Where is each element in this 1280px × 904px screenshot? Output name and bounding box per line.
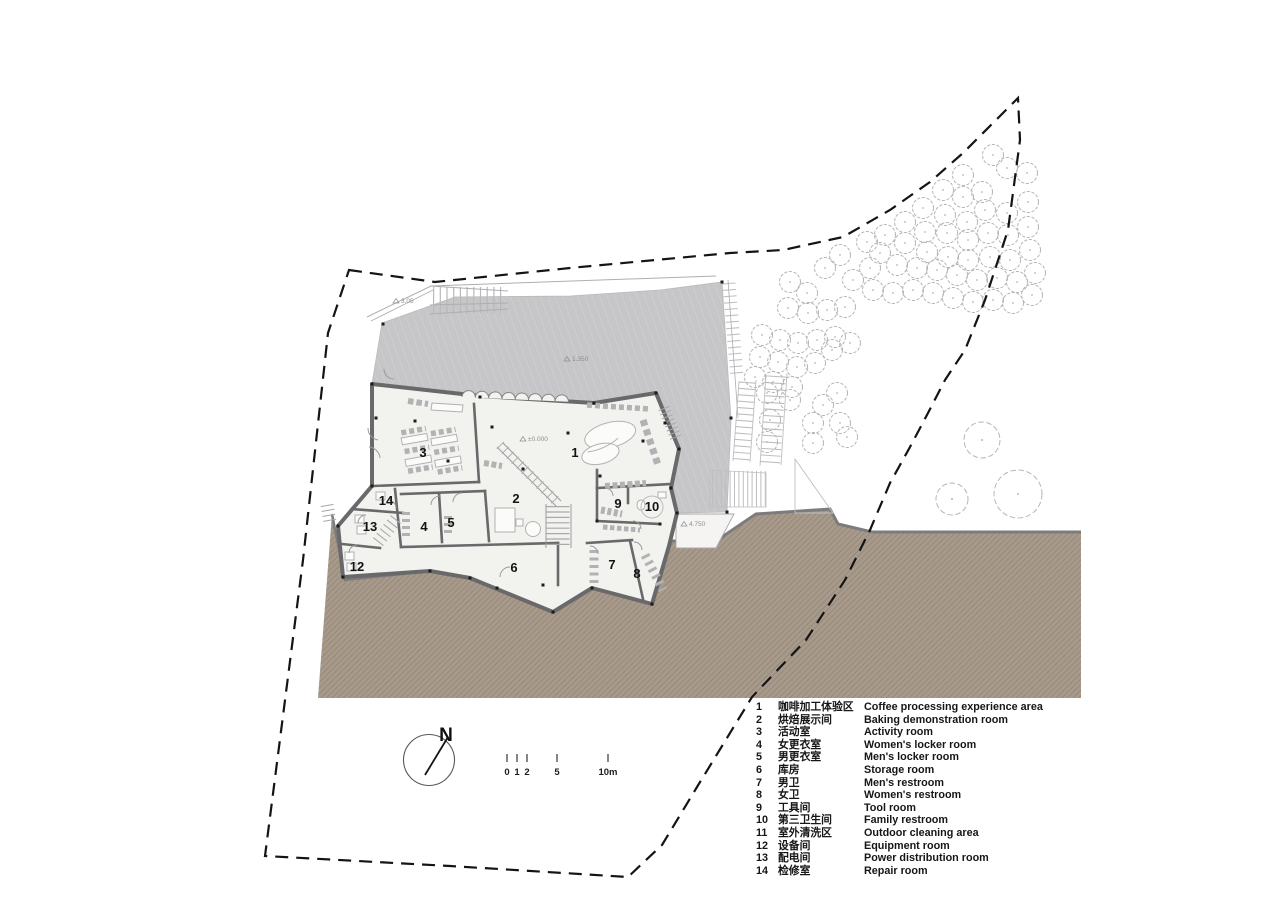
column-dot: [591, 587, 594, 590]
legend-num: 9: [756, 802, 778, 815]
tree-icon: [787, 357, 808, 378]
column-dot: [342, 576, 345, 579]
legend-zh: 男卫: [778, 777, 864, 790]
tree-icon: [843, 270, 864, 291]
tree-icon: [815, 258, 836, 279]
tree-icon: [1018, 192, 1039, 213]
tree-icon: [983, 145, 1004, 166]
tree-icon: [1022, 285, 1043, 306]
tree-icon: [825, 327, 846, 348]
legend-zh: 女更衣室: [778, 739, 864, 752]
room-number-label: 2: [512, 491, 519, 506]
column-dot: [567, 432, 570, 435]
ramp-triangle: [795, 459, 833, 513]
room-number-label: 4: [420, 519, 428, 534]
floor-plan-drawing: 12345678910121314 ±0.0004.7503.051.350 N…: [0, 0, 1280, 904]
legend-num: 10: [756, 814, 778, 827]
legend-num: 8: [756, 789, 778, 802]
tree-icon: [953, 165, 974, 186]
column-dot: [721, 281, 724, 284]
legend-row: 4女更衣室Women's locker room: [756, 739, 1076, 752]
legend-zh: 检修室: [778, 865, 864, 878]
tree-icon: [780, 390, 801, 411]
column-dot: [337, 525, 340, 528]
scale-bar: 012510m: [504, 754, 617, 778]
legend-row: 3活动室Activity room: [756, 726, 1076, 739]
column-dot: [414, 420, 417, 423]
column-dot: [371, 485, 374, 488]
tree-icon: [967, 270, 988, 291]
legend-zh: 咖啡加工体验区: [778, 701, 864, 714]
room-number-label: 8: [633, 566, 640, 581]
tree-icon: [923, 283, 944, 304]
tree-icon: [797, 283, 818, 304]
legend-row: 7男卫Men's restroom: [756, 777, 1076, 790]
tree-icon: [803, 433, 824, 454]
column-dot: [664, 422, 667, 425]
large-tree-icon: [936, 483, 968, 515]
level-annotation: 3.05: [393, 298, 414, 305]
legend-en: Men's restroom: [864, 777, 1076, 790]
room-number-label: 14: [379, 493, 394, 508]
north-compass: N: [404, 725, 455, 786]
tree-icon: [978, 223, 999, 244]
tree-icon: [822, 340, 843, 361]
legend-en: Family restroom: [864, 814, 1076, 827]
room-number-label: 1: [571, 445, 578, 460]
legend-zh: 设备间: [778, 840, 864, 853]
tree-icon: [1017, 163, 1038, 184]
column-dot: [542, 584, 545, 587]
tree-icon: [860, 258, 881, 279]
column-dot: [522, 468, 525, 471]
tree-icon: [997, 203, 1018, 224]
legend-zh: 库房: [778, 764, 864, 777]
tree-icon: [938, 247, 959, 268]
level-annotation-text: ±0.000: [528, 436, 548, 443]
tree-icon: [778, 298, 799, 319]
scale-tick-label: 10m: [598, 767, 617, 778]
room-number-label: 3: [419, 445, 426, 460]
legend-row: 10第三卫生间Family restroom: [756, 814, 1076, 827]
legend-en: Power distribution room: [864, 852, 1076, 865]
tree-icon: [937, 223, 958, 244]
legend-num: 14: [756, 865, 778, 878]
scale-tick-label: 2: [524, 767, 529, 778]
tree-icon: [963, 292, 984, 313]
column-dot: [382, 323, 385, 326]
tree-icon: [917, 242, 938, 263]
legend-zh: 室外清洗区: [778, 827, 864, 840]
room-number-label: 7: [608, 557, 615, 572]
legend-num: 1: [756, 701, 778, 714]
column-dot: [651, 603, 654, 606]
scale-tick-label: 1: [514, 767, 520, 778]
tree-icon: [835, 297, 856, 318]
tree-icon: [768, 352, 789, 373]
legend-en: Storage room: [864, 764, 1076, 777]
legend-en: Activity room: [864, 726, 1076, 739]
tree-icon: [813, 395, 834, 416]
legend: 1咖啡加工体验区Coffee processing experience are…: [756, 701, 1076, 877]
legend-zh: 工具间: [778, 802, 864, 815]
column-dot: [659, 523, 662, 526]
scale-tick-label: 0: [504, 767, 509, 778]
tree-icon: [903, 280, 924, 301]
column-dot: [593, 402, 596, 405]
column-dot: [429, 570, 432, 573]
column-dot: [491, 426, 494, 429]
legend-zh: 女卫: [778, 789, 864, 802]
legend-en: Repair room: [864, 865, 1076, 878]
legend-num: 5: [756, 751, 778, 764]
compass-north-label: N: [439, 725, 453, 746]
legend-num: 3: [756, 726, 778, 739]
legend-zh: 活动室: [778, 726, 864, 739]
legend-row: 1咖啡加工体验区Coffee processing experience are…: [756, 701, 1076, 714]
tree-icon: [907, 258, 928, 279]
legend-num: 12: [756, 840, 778, 853]
tree-icon: [1025, 263, 1046, 284]
tree-icon: [757, 383, 778, 404]
tree-icon: [857, 232, 878, 253]
tree-icon: [807, 330, 828, 351]
tree-icon: [958, 250, 979, 271]
legend-row: 13配电间Power distribution room: [756, 852, 1076, 865]
tree-icon: [953, 187, 974, 208]
legend-row: 9工具间Tool room: [756, 802, 1076, 815]
tree-icon: [883, 283, 904, 304]
column-dot: [670, 487, 673, 490]
scale-tick-label: 5: [554, 767, 560, 778]
legend-zh: 烘焙展示间: [778, 714, 864, 727]
level-annotation-text: 1.350: [572, 356, 589, 363]
tree-icon: [805, 353, 826, 374]
column-dot: [479, 396, 482, 399]
legend-num: 6: [756, 764, 778, 777]
tree-icon: [1018, 217, 1039, 238]
legend-row: 12设备间Equipment room: [756, 840, 1076, 853]
legend-row: 2烘焙展示间Baking demonstration room: [756, 714, 1076, 727]
room-number-label: 12: [350, 559, 364, 574]
column-dot: [371, 383, 374, 386]
tree-icon: [770, 330, 791, 351]
tree-icon: [895, 233, 916, 254]
legend-num: 4: [756, 739, 778, 752]
building: [327, 369, 679, 612]
legend-en: Tool room: [864, 802, 1076, 815]
column-dot: [447, 460, 450, 463]
legend-row: 11室外清洗区Outdoor cleaning area: [756, 827, 1076, 840]
legend-en: Baking demonstration room: [864, 714, 1076, 727]
legend-en: Women's locker room: [864, 739, 1076, 752]
legend-num: 11: [756, 827, 778, 840]
level-annotation-text: 3.05: [401, 298, 414, 305]
room-number-label: 10: [645, 499, 659, 514]
tree-icon: [943, 288, 964, 309]
legend-row: 6库房Storage room: [756, 764, 1076, 777]
legend-en: Men's locker room: [864, 751, 1076, 764]
legend-row: 5男更衣室Men's locker room: [756, 751, 1076, 764]
column-dot: [730, 417, 733, 420]
room-number-label: 9: [614, 496, 621, 511]
tree-icon: [870, 243, 891, 264]
room-number-label: 5: [447, 515, 454, 530]
tree-icon: [817, 300, 838, 321]
tree-icon: [947, 265, 968, 286]
legend-en: Equipment room: [864, 840, 1076, 853]
tree-icon: [933, 180, 954, 201]
large-tree-icon: [964, 422, 1000, 458]
legend-en: Women's restroom: [864, 789, 1076, 802]
tree-icon: [788, 333, 809, 354]
column-dot: [552, 611, 555, 614]
column-dot: [655, 392, 658, 395]
legend-num: 13: [756, 852, 778, 865]
column-dot: [726, 511, 729, 514]
legend-en: Coffee processing experience area: [864, 701, 1076, 714]
trees-group: [745, 145, 1046, 519]
tree-icon: [1003, 293, 1024, 314]
tree-icon: [837, 427, 858, 448]
column-dot: [469, 577, 472, 580]
tree-icon: [887, 255, 908, 276]
tree-icon: [798, 303, 819, 324]
tree-icon: [803, 413, 824, 434]
room-number-label: 13: [363, 519, 377, 534]
tree-icon: [935, 205, 956, 226]
tree-icon: [830, 413, 851, 434]
tree-icon: [1020, 240, 1041, 261]
legend-num: 7: [756, 777, 778, 790]
column-dot: [596, 520, 599, 523]
column-dot: [676, 512, 679, 515]
legend-zh: 男更衣室: [778, 751, 864, 764]
legend-zh: 配电间: [778, 852, 864, 865]
level-annotation-text: 4.750: [689, 521, 706, 528]
column-dot: [642, 440, 645, 443]
legend-row: 14检修室Repair room: [756, 865, 1076, 878]
legend-zh: 第三卫生间: [778, 814, 864, 827]
tree-icon: [913, 198, 934, 219]
site-plan-page: 12345678910121314 ±0.0004.7503.051.350 N…: [0, 0, 1280, 904]
tree-icon: [1000, 250, 1021, 271]
legend-num: 2: [756, 714, 778, 727]
tree-icon: [895, 212, 916, 233]
tree-icon: [975, 200, 996, 221]
column-dot: [496, 587, 499, 590]
tree-icon: [972, 182, 993, 203]
legend-row: 8女卫Women's restroom: [756, 789, 1076, 802]
room-number-label: 6: [510, 560, 517, 575]
tree-icon: [927, 260, 948, 281]
tree-icon: [830, 245, 851, 266]
tree-icon: [915, 222, 936, 243]
tree-icon: [827, 383, 848, 404]
large-tree-icon: [994, 470, 1042, 518]
legend-en: Outdoor cleaning area: [864, 827, 1076, 840]
column-dot: [375, 417, 378, 420]
tree-icon: [863, 280, 884, 301]
column-dot: [678, 448, 681, 451]
column-dot: [599, 475, 602, 478]
